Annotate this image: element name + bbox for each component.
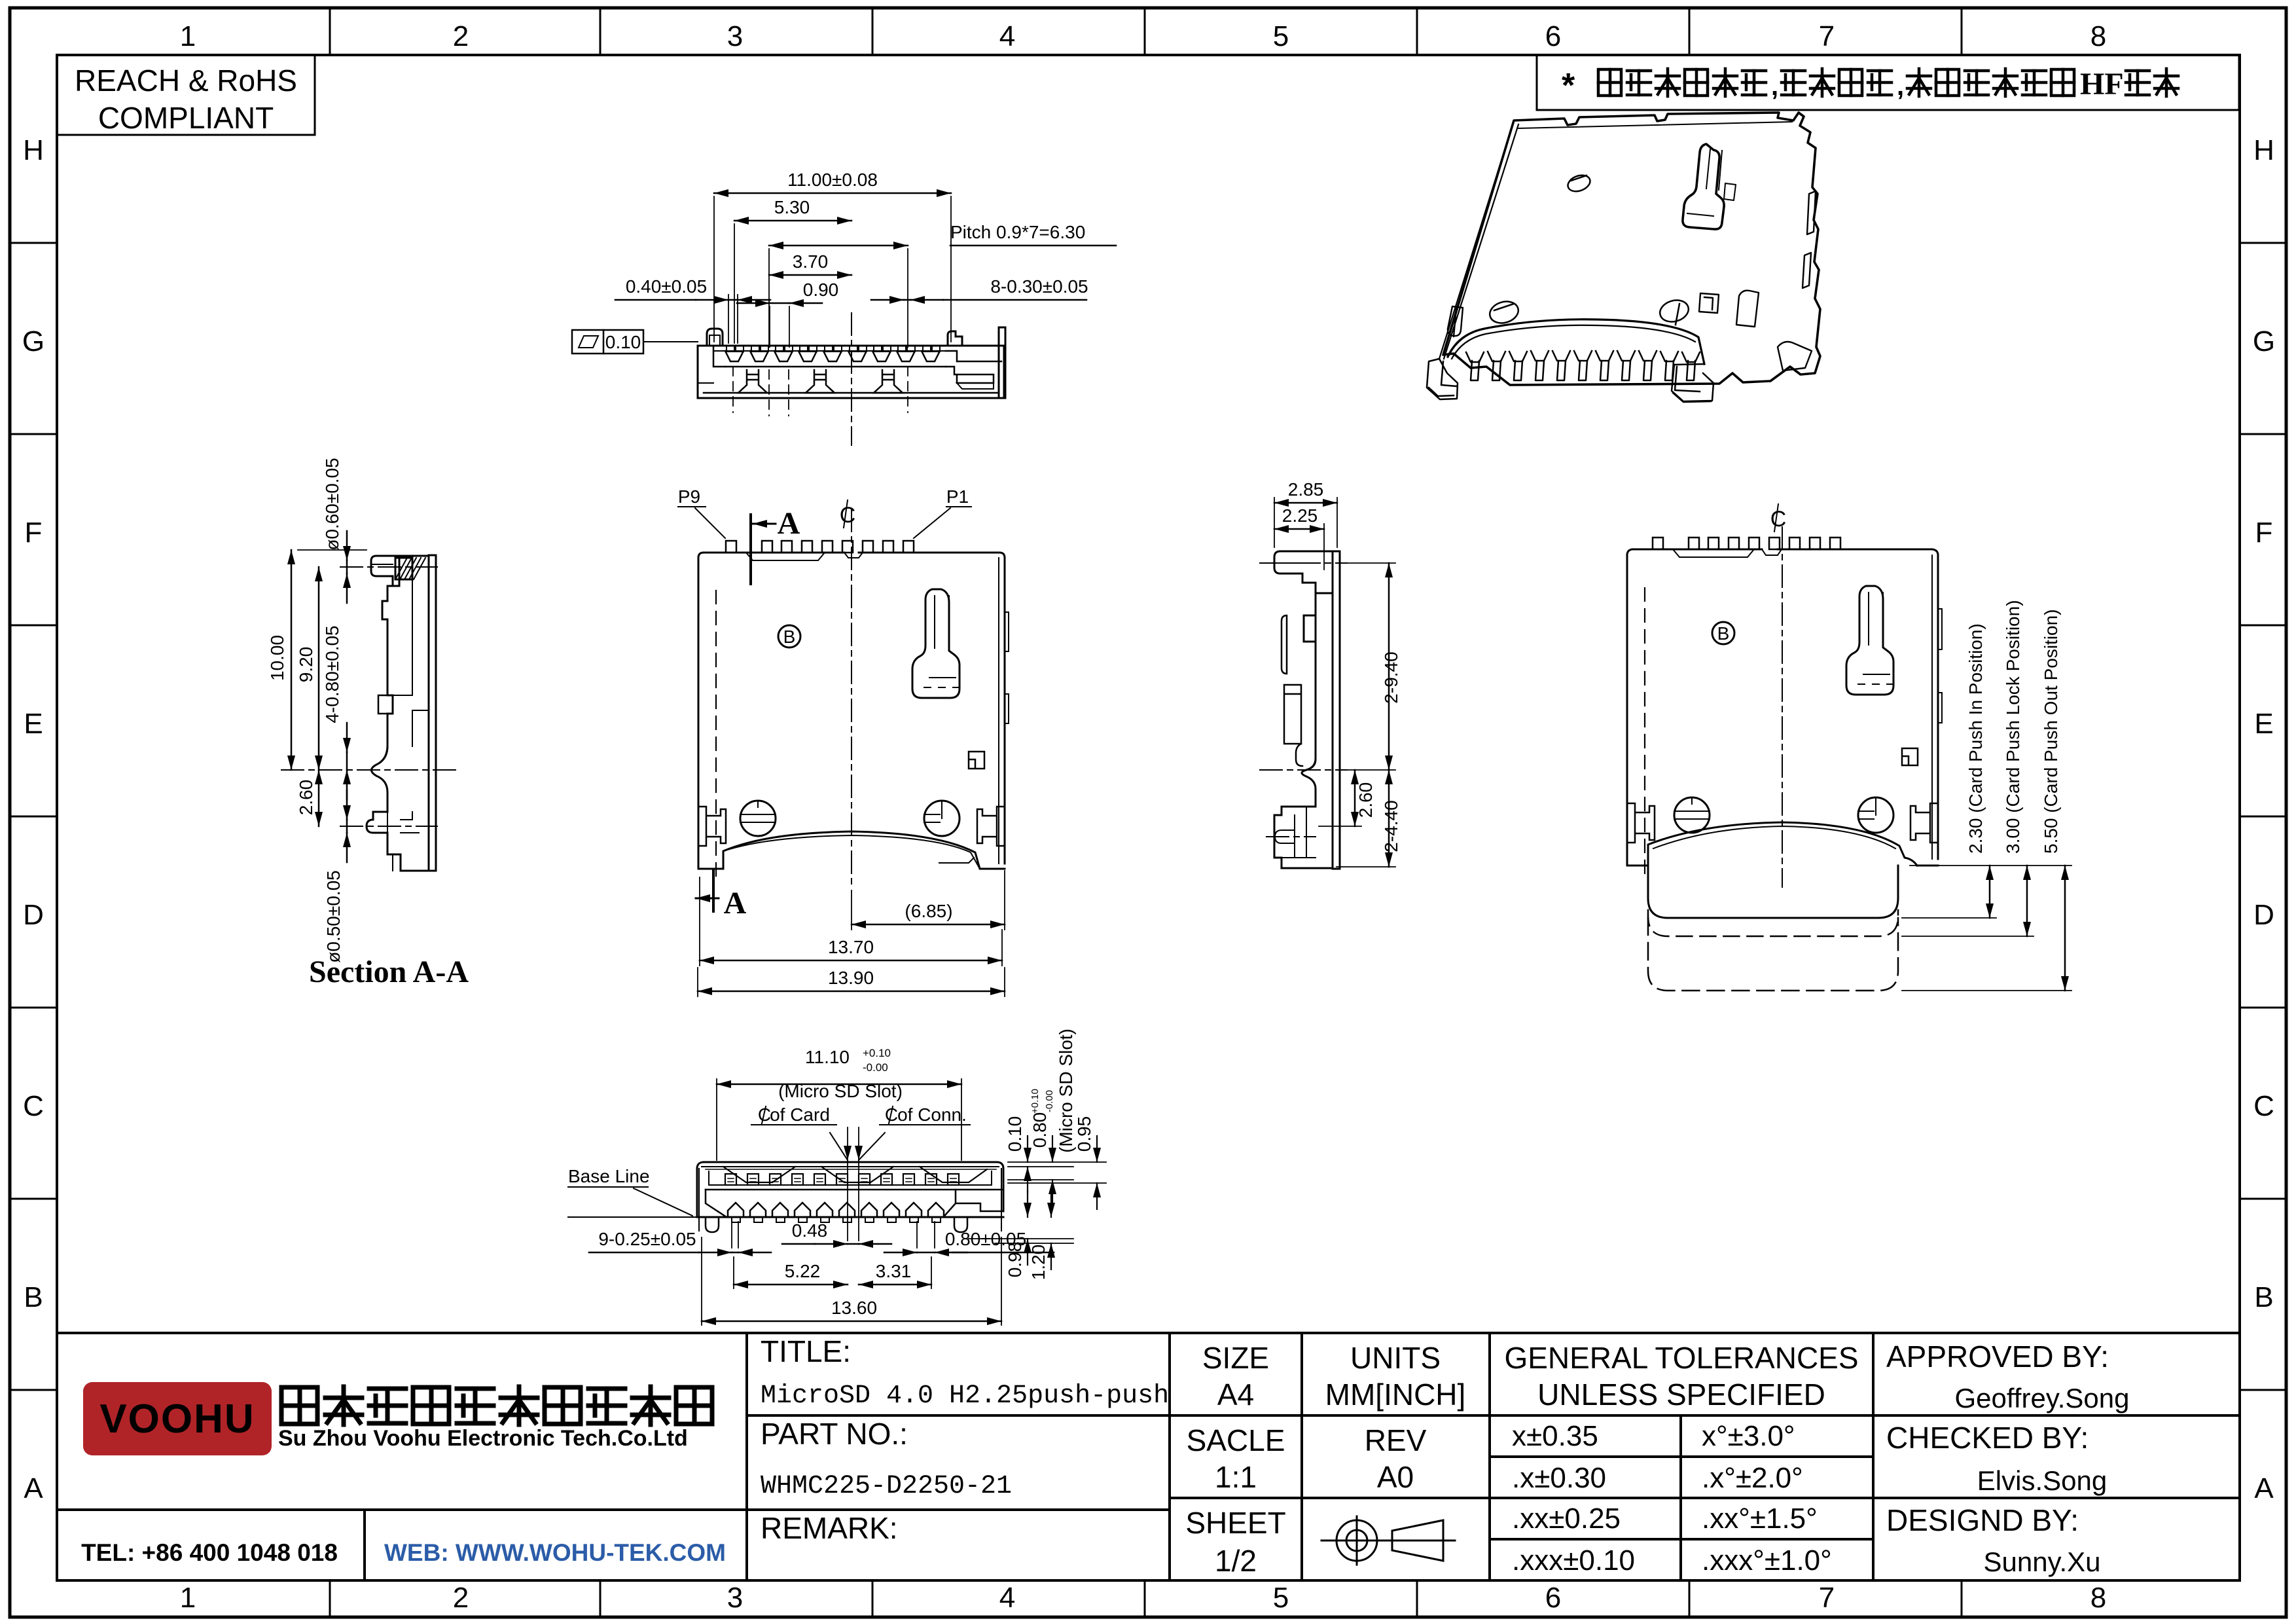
svg-text:E: E [2254, 708, 2273, 740]
svg-text:C: C [2253, 1090, 2274, 1122]
svg-text:13.70: 13.70 [828, 937, 874, 957]
svg-text:F: F [25, 517, 43, 549]
svg-text:Elvis.Song: Elvis.Song [1977, 1465, 2107, 1496]
svg-text:A: A [724, 886, 747, 921]
svg-text:REV: REV [1365, 1423, 1427, 1457]
svg-text:+0.10: +0.10 [1030, 1089, 1041, 1114]
svg-text:COMPLIANT: COMPLIANT [98, 101, 274, 135]
svg-text:2.60: 2.60 [1355, 782, 1376, 818]
svg-text:TITLE:: TITLE: [761, 1334, 851, 1368]
svg-text:.x°±2.0°: .x°±2.0° [1702, 1462, 1803, 1494]
svg-text:A: A [778, 506, 800, 541]
svg-text:P9: P9 [678, 486, 700, 507]
svg-text:3: 3 [727, 1582, 743, 1614]
svg-text:1: 1 [180, 1582, 196, 1614]
svg-text:2-4.40: 2-4.40 [1381, 800, 1401, 852]
svg-text:+0.10: +0.10 [863, 1047, 891, 1059]
svg-text:TEL: +86 400 1048 018: TEL: +86 400 1048 018 [81, 1539, 338, 1566]
svg-text:13.60: 13.60 [831, 1298, 877, 1318]
svg-text:A: A [24, 1472, 43, 1504]
svg-text:Section A-A: Section A-A [309, 955, 469, 989]
svg-text:7: 7 [1819, 1582, 1835, 1614]
svg-text:C: C [23, 1090, 44, 1122]
svg-text:,: , [1897, 72, 1904, 101]
svg-text:2: 2 [453, 20, 469, 52]
svg-text:G: G [22, 325, 45, 357]
svg-text:3: 3 [727, 20, 743, 52]
svg-text:G: G [2253, 325, 2275, 357]
svg-text:.xx°±1.5°: .xx°±1.5° [1702, 1503, 1818, 1535]
svg-text:REACH & RoHS: REACH & RoHS [75, 64, 297, 98]
svg-text:A: A [2254, 1472, 2274, 1504]
svg-text:13.90: 13.90 [828, 968, 874, 988]
svg-text:B: B [24, 1281, 43, 1313]
svg-text:-0.00: -0.00 [863, 1061, 888, 1074]
svg-text:0.90: 0.90 [803, 280, 839, 300]
svg-text:5: 5 [1273, 1582, 1289, 1614]
svg-text:MicroSD 4.0 H2.25push-push: MicroSD 4.0 H2.25push-push [761, 1381, 1169, 1411]
svg-text:7: 7 [1819, 20, 1835, 52]
svg-text:6: 6 [1545, 1582, 1561, 1614]
svg-text:CHECKED BY:: CHECKED BY: [1886, 1421, 2089, 1455]
svg-text:,: , [1771, 72, 1778, 101]
svg-text:2.85: 2.85 [1288, 479, 1324, 500]
svg-text:2.25: 2.25 [1282, 505, 1318, 526]
svg-text:B: B [783, 627, 796, 647]
svg-text:2-9.40: 2-9.40 [1381, 651, 1401, 703]
svg-text:E: E [24, 708, 43, 740]
svg-text:UNITS: UNITS [1350, 1341, 1441, 1375]
svg-text:11.10: 11.10 [805, 1047, 850, 1067]
svg-text:4-0.80±0.05: 4-0.80±0.05 [322, 625, 342, 723]
svg-text:3.31: 3.31 [876, 1261, 912, 1281]
svg-text:B: B [1717, 623, 1730, 644]
svg-text:UNLESS SPECIFIED: UNLESS SPECIFIED [1537, 1377, 1825, 1412]
svg-text:HF: HF [2080, 67, 2124, 101]
svg-text:8: 8 [2090, 20, 2106, 52]
svg-text:1.20: 1.20 [1028, 1245, 1049, 1281]
svg-text:VOOHU: VOOHU [99, 1396, 255, 1442]
svg-text:D: D [23, 899, 44, 931]
svg-text:(6.85): (6.85) [905, 901, 952, 921]
svg-text:P1: P1 [946, 486, 969, 507]
svg-text:of Card: of Card [770, 1104, 830, 1125]
svg-text:8-0.30±0.05: 8-0.30±0.05 [990, 276, 1088, 297]
svg-text:REMARK:: REMARK: [761, 1511, 898, 1545]
svg-text:DESIGND BY:: DESIGND BY: [1886, 1503, 2079, 1537]
svg-text:.x±0.30: .x±0.30 [1512, 1462, 1606, 1494]
svg-text:SIZE: SIZE [1202, 1341, 1269, 1375]
svg-text:0.10: 0.10 [605, 332, 641, 352]
svg-text:A4: A4 [1217, 1377, 1254, 1412]
svg-text:H: H [23, 134, 44, 166]
svg-text:3.00 (Card Push Lock Position: 3.00 (Card Push Lock Position) [2003, 600, 2023, 854]
svg-text:C: C [840, 503, 856, 528]
svg-text:3.70: 3.70 [793, 251, 829, 272]
svg-text:*: * [1562, 67, 1575, 105]
svg-text:.xx±0.25: .xx±0.25 [1512, 1503, 1621, 1535]
svg-text:B: B [2254, 1281, 2273, 1313]
svg-text:2.30 (Card Push In Position): 2.30 (Card Push In Position) [1965, 623, 1986, 854]
svg-text:F: F [2255, 517, 2273, 549]
svg-text:0.80: 0.80 [1030, 1112, 1050, 1148]
svg-text:.xxx±0.10: .xxx±0.10 [1512, 1544, 1635, 1577]
svg-text:5.50 (Card Push Out Position): 5.50 (Card Push Out Position) [2041, 609, 2061, 854]
svg-text:SHEET: SHEET [1185, 1506, 1285, 1540]
svg-text:1/2: 1/2 [1215, 1544, 1257, 1578]
svg-text:5.30: 5.30 [774, 197, 810, 217]
svg-text:10.00: 10.00 [267, 635, 287, 681]
svg-text:0.98: 0.98 [1005, 1242, 1025, 1278]
svg-text:(Micro SD Slot): (Micro SD Slot) [778, 1081, 903, 1101]
svg-text:6: 6 [1545, 20, 1561, 52]
svg-text:(Micro SD Slot): (Micro SD Slot) [1056, 1029, 1076, 1153]
svg-text:1: 1 [180, 20, 196, 52]
svg-text:-0.00: -0.00 [1044, 1090, 1055, 1112]
svg-text:11.00±0.08: 11.00±0.08 [787, 170, 878, 190]
svg-text:Su Zhou Voohu Electronic Tech.: Su Zhou Voohu Electronic Tech.Co.Ltd [278, 1426, 688, 1451]
svg-text:.xxx°±1.0°: .xxx°±1.0° [1702, 1544, 1832, 1577]
svg-text:APPROVED BY:: APPROVED BY: [1886, 1340, 2109, 1374]
svg-text:PART NO.:: PART NO.: [761, 1417, 908, 1451]
svg-text:2.60: 2.60 [296, 780, 316, 816]
svg-text:5.22: 5.22 [785, 1261, 821, 1281]
svg-text:1:1: 1:1 [1215, 1460, 1257, 1494]
svg-text:2: 2 [453, 1582, 469, 1614]
svg-text:Pitch 0.9*7=6.30: Pitch 0.9*7=6.30 [950, 222, 1085, 242]
svg-text:Base Line: Base Line [568, 1166, 650, 1186]
svg-text:D: D [2253, 899, 2274, 931]
svg-text:4: 4 [999, 1582, 1015, 1614]
svg-text:WHMC225-D2250-21: WHMC225-D2250-21 [761, 1472, 1012, 1501]
svg-text:ø0.60±0.05: ø0.60±0.05 [322, 458, 342, 550]
svg-text:0.95: 0.95 [1074, 1116, 1094, 1152]
svg-text:Sunny.Xu: Sunny.Xu [1983, 1546, 2100, 1577]
svg-text:5: 5 [1273, 20, 1289, 52]
svg-text:C: C [1770, 507, 1787, 532]
svg-text:9-0.25±0.05: 9-0.25±0.05 [598, 1229, 696, 1249]
svg-text:x±0.35: x±0.35 [1512, 1420, 1598, 1452]
svg-text:ø0.50±0.05: ø0.50±0.05 [323, 870, 344, 962]
svg-text:0.10: 0.10 [1005, 1116, 1025, 1152]
svg-text:A0: A0 [1377, 1460, 1414, 1494]
svg-text:0.40±0.05: 0.40±0.05 [626, 276, 707, 297]
svg-text:SACLE: SACLE [1187, 1423, 1285, 1457]
svg-text:Geoffrey.Song: Geoffrey.Song [1955, 1383, 2130, 1413]
svg-text:0.48: 0.48 [792, 1220, 828, 1241]
svg-text:of Conn.: of Conn. [897, 1104, 967, 1125]
svg-text:MM[INCH]: MM[INCH] [1325, 1377, 1466, 1412]
svg-text:8: 8 [2090, 1582, 2106, 1614]
svg-text:4: 4 [999, 20, 1015, 52]
svg-text:H: H [2253, 134, 2274, 166]
svg-text:WEB: WWW.WOHU-TEK.COM: WEB: WWW.WOHU-TEK.COM [384, 1539, 726, 1566]
svg-text:GENERAL TOLERANCES: GENERAL TOLERANCES [1504, 1341, 1858, 1375]
svg-text:9.20: 9.20 [296, 647, 316, 683]
svg-text:x°±3.0°: x°±3.0° [1702, 1420, 1795, 1452]
